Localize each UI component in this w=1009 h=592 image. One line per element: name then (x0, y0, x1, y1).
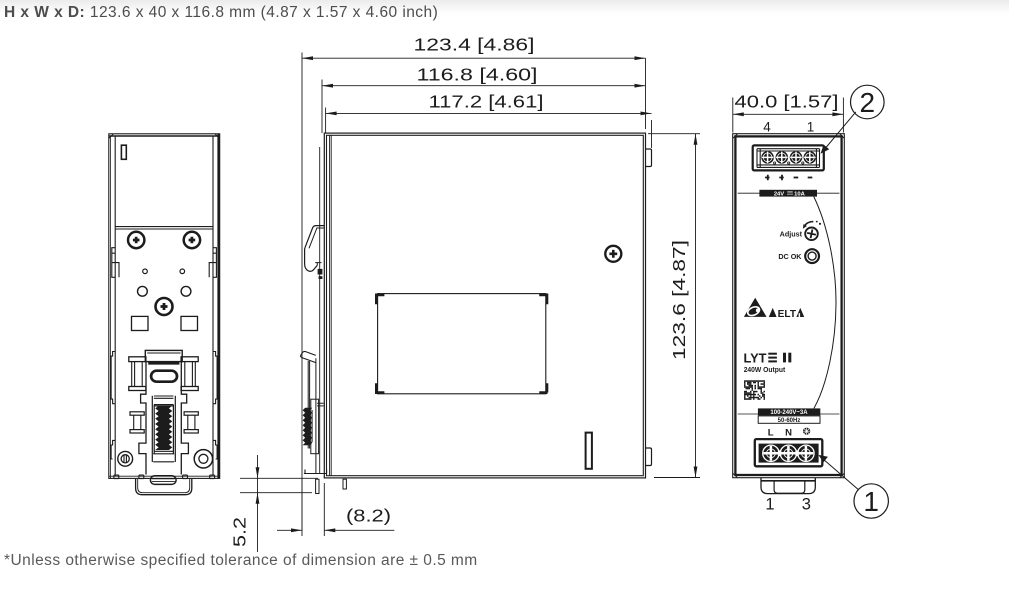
svg-text:123.4 [4.86]: 123.4 [4.86] (414, 35, 535, 55)
svg-text:1: 1 (765, 495, 774, 513)
svg-text:117.2 [4.61]: 117.2 [4.61] (429, 91, 544, 111)
svg-text:ELT: ELT (778, 309, 796, 320)
svg-text:40.0 [1.57]: 40.0 [1.57] (735, 92, 839, 112)
svg-text:4: 4 (763, 119, 771, 134)
svg-text:50-60Hz: 50-60Hz (778, 418, 801, 424)
svg-text:1: 1 (863, 486, 879, 517)
svg-text:L: L (768, 427, 774, 438)
svg-text:(8.2): (8.2) (346, 506, 391, 526)
svg-text:Adjust: Adjust (780, 229, 803, 238)
svg-text:1: 1 (807, 119, 815, 134)
svg-text:2: 2 (860, 87, 876, 118)
svg-text:10A: 10A (794, 191, 805, 197)
svg-text:DC OK: DC OK (778, 252, 802, 261)
svg-text:N: N (785, 427, 792, 438)
svg-text:LYT: LYT (744, 350, 767, 365)
svg-text:240W Output: 240W Output (744, 365, 786, 374)
svg-text:100-240V~3A: 100-240V~3A (770, 410, 808, 416)
svg-text:5.2: 5.2 (230, 517, 250, 547)
svg-text:116.8 [4.60]: 116.8 [4.60] (417, 65, 538, 85)
svg-text:3: 3 (802, 495, 811, 513)
svg-text:24V: 24V (774, 191, 784, 197)
svg-text:123.6 [4.87]: 123.6 [4.87] (669, 240, 689, 360)
